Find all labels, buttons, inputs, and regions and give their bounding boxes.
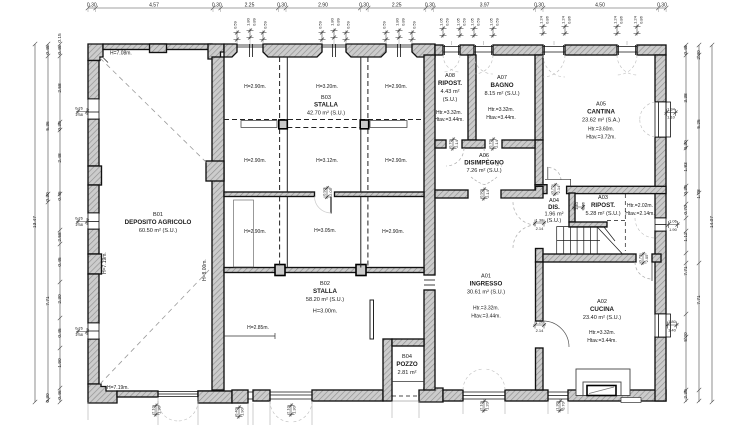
svg-text:Htav.=3.44m.: Htav.=3.44m.	[434, 117, 464, 123]
svg-text:1.20: 1.20	[485, 401, 490, 410]
svg-text:RIPOST.: RIPOST.	[438, 80, 462, 87]
svg-text:B01: B01	[153, 212, 163, 218]
svg-text:DISIMPEGNO: DISIMPEGNO	[464, 160, 504, 167]
svg-text:1.40: 1.40	[668, 328, 677, 333]
svg-text:2.30: 2.30	[696, 50, 702, 60]
svg-text:A06: A06	[479, 153, 489, 159]
svg-text:H=2.85m.: H=2.85m.	[247, 325, 269, 331]
svg-text:1.24: 1.24	[539, 15, 544, 24]
svg-text:0.89: 0.89	[336, 17, 341, 26]
svg-text:0.30: 0.30	[87, 3, 97, 9]
svg-text:0.30: 0.30	[57, 121, 63, 131]
svg-text:3.97: 3.97	[480, 3, 490, 9]
svg-text:2.14: 2.14	[454, 139, 459, 148]
svg-text:H=8.00m.: H=8.00m.	[202, 259, 208, 281]
svg-text:1.24: 1.24	[633, 15, 638, 24]
svg-text:0.59: 0.59	[263, 20, 268, 29]
svg-text:Htav.=3.44m.: Htav.=3.44m.	[471, 314, 501, 320]
svg-text:0.59: 0.59	[476, 17, 481, 26]
svg-text:1.80: 1.80	[246, 17, 251, 26]
svg-text:1.90: 1.90	[57, 358, 63, 368]
svg-text:0.30: 0.30	[359, 3, 369, 9]
svg-text:1.30: 1.30	[157, 405, 162, 414]
svg-text:0.70: 0.70	[488, 139, 493, 148]
svg-text:H=2.90m.: H=2.90m.	[244, 229, 266, 235]
svg-text:Htr.=3.60m.: Htr.=3.60m.	[588, 127, 614, 133]
svg-text:H=3.12m.: H=3.12m.	[316, 158, 338, 164]
svg-text:2.90: 2.90	[318, 3, 328, 9]
svg-text:0.59: 0.59	[445, 17, 450, 26]
svg-text:1.80: 1.80	[668, 319, 677, 324]
svg-text:2.14: 2.14	[536, 226, 545, 231]
svg-text:0.59: 0.59	[382, 20, 387, 29]
svg-text:2.30: 2.30	[57, 294, 63, 304]
svg-text:0.76: 0.76	[75, 326, 84, 331]
svg-text:1.05: 1.05	[439, 17, 444, 26]
svg-text:14.07: 14.07	[709, 216, 715, 228]
svg-text:0.70: 0.70	[561, 401, 566, 410]
svg-text:POZZO: POZZO	[396, 361, 417, 368]
svg-text:H=2.90m.: H=2.90m.	[244, 84, 266, 90]
svg-text:0.45: 0.45	[57, 191, 63, 201]
svg-text:1.30: 1.30	[292, 405, 297, 414]
svg-text:0.30: 0.30	[277, 3, 287, 9]
svg-text:0.70: 0.70	[448, 139, 453, 148]
svg-text:1.90: 1.90	[240, 407, 245, 416]
svg-text:1.38: 1.38	[75, 332, 84, 337]
svg-text:1.78: 1.78	[696, 189, 702, 199]
svg-text:5.28 m² (S.U.): 5.28 m² (S.U.)	[585, 211, 620, 217]
svg-text:1.05: 1.05	[470, 17, 475, 26]
svg-text:1.05: 1.05	[489, 17, 494, 26]
svg-text:0.86: 0.86	[619, 15, 624, 24]
svg-text:1.24: 1.24	[561, 15, 566, 24]
svg-text:2.14: 2.14	[536, 328, 545, 333]
svg-text:0.59: 0.59	[233, 20, 238, 29]
svg-text:0.76: 0.76	[75, 106, 84, 111]
svg-text:0.15: 0.15	[57, 33, 63, 43]
svg-text:1.38: 1.38	[75, 112, 84, 117]
svg-text:7.71: 7.71	[696, 295, 702, 305]
svg-text:2.10: 2.10	[151, 405, 156, 414]
svg-text:0.70: 0.70	[683, 205, 689, 215]
svg-text:1.10: 1.10	[667, 115, 676, 120]
svg-text:0.45: 0.45	[683, 45, 689, 55]
svg-text:30.61 m² (S.U.): 30.61 m² (S.U.)	[467, 290, 505, 296]
svg-text:1.05: 1.05	[456, 17, 461, 26]
svg-text:DEPOSITO AGRICOLO: DEPOSITO AGRICOLO	[125, 219, 192, 226]
svg-text:0.30: 0.30	[45, 393, 51, 403]
svg-text:2.81 m²: 2.81 m²	[398, 370, 417, 376]
svg-text:A02: A02	[597, 299, 607, 305]
svg-text:0.86: 0.86	[545, 15, 550, 24]
svg-text:2.25: 2.25	[245, 3, 255, 9]
svg-text:(S.U.): (S.U.)	[547, 218, 562, 224]
svg-text:7.71: 7.71	[45, 296, 51, 306]
svg-text:1.30: 1.30	[555, 401, 560, 410]
svg-text:23.40 m² (S.U.): 23.40 m² (S.U.)	[583, 315, 621, 321]
svg-text:0.45: 0.45	[57, 45, 63, 55]
svg-text:0.45: 0.45	[57, 328, 63, 338]
svg-text:1.34: 1.34	[667, 107, 676, 112]
svg-text:H=3.00m.: H=3.00m.	[313, 309, 338, 315]
svg-text:58.20 m² (S.U.): 58.20 m² (S.U.)	[306, 297, 344, 303]
svg-text:2.14: 2.14	[485, 189, 490, 198]
svg-text:1.20: 1.20	[536, 320, 545, 325]
svg-text:CANTINA: CANTINA	[587, 109, 615, 116]
svg-text:A03: A03	[598, 195, 608, 201]
svg-text:H=7.19m.: H=7.19m.	[107, 385, 129, 391]
svg-text:Htr.=2.02m.: Htr.=2.02m.	[627, 203, 653, 209]
svg-text:0.30: 0.30	[425, 3, 435, 9]
svg-text:0.86: 0.86	[567, 15, 572, 24]
svg-text:B03: B03	[321, 95, 331, 101]
svg-text:Htav.=2.14m.: Htav.=2.14m.	[625, 211, 655, 217]
svg-text:0.30: 0.30	[212, 3, 222, 9]
svg-text:5.36: 5.36	[45, 121, 51, 131]
svg-text:0.70: 0.70	[550, 185, 555, 194]
svg-text:0.30: 0.30	[657, 3, 667, 9]
svg-text:0.89: 0.89	[401, 17, 406, 26]
svg-text:1.12: 1.12	[683, 232, 689, 242]
svg-text:0.89: 0.89	[252, 17, 257, 26]
svg-text:5.25: 5.25	[696, 119, 702, 129]
svg-text:STALLA: STALLA	[314, 102, 338, 109]
svg-text:60.50 m² (S.U.): 60.50 m² (S.U.)	[139, 228, 177, 234]
svg-text:4.57: 4.57	[149, 3, 159, 9]
svg-text:2.30: 2.30	[683, 389, 689, 399]
svg-text:Htr.=3.32m.: Htr.=3.32m.	[436, 110, 462, 116]
svg-text:H=2.90m.: H=2.90m.	[385, 158, 407, 164]
svg-text:A05: A05	[596, 102, 606, 108]
svg-text:1.06: 1.06	[669, 219, 678, 224]
svg-text:4.50: 4.50	[595, 3, 605, 9]
svg-text:0.59: 0.59	[412, 20, 417, 29]
svg-text:A08: A08	[445, 73, 455, 79]
svg-text:2.05: 2.05	[644, 254, 649, 263]
svg-text:H=7.08m.: H=7.08m.	[110, 51, 132, 57]
svg-text:2.14: 2.14	[494, 139, 499, 148]
svg-text:2.25: 2.25	[392, 3, 402, 9]
svg-text:INGRESSO: INGRESSO	[470, 281, 503, 288]
svg-text:0.45: 0.45	[57, 257, 63, 267]
svg-text:7.71: 7.71	[683, 266, 689, 276]
svg-text:Htr.=3.32m.: Htr.=3.32m.	[473, 306, 499, 312]
svg-text:0.30: 0.30	[683, 140, 689, 150]
svg-text:DIS.: DIS.	[548, 205, 560, 211]
svg-text:0.30: 0.30	[45, 192, 51, 202]
svg-text:0.46: 0.46	[57, 390, 63, 400]
svg-text:STALLA: STALLA	[313, 288, 337, 295]
svg-text:2.10: 2.10	[479, 401, 484, 410]
svg-text:0.45: 0.45	[45, 45, 51, 55]
svg-text:H=2.90m.: H=2.90m.	[382, 229, 404, 235]
svg-text:B04: B04	[402, 354, 412, 360]
svg-text:1.83: 1.83	[683, 162, 689, 172]
svg-text:Htav.=3.72m.: Htav.=3.72m.	[586, 135, 616, 141]
svg-text:4.43 m²: 4.43 m²	[441, 89, 460, 95]
svg-text:H=3.05m.: H=3.05m.	[314, 228, 336, 234]
svg-text:Htr.=3.32m.: Htr.=3.32m.	[589, 330, 615, 336]
svg-text:2.48: 2.48	[57, 153, 63, 163]
svg-text:0.90: 0.90	[479, 189, 484, 198]
svg-text:0.90: 0.90	[322, 187, 327, 196]
svg-text:Htr.=3.32m.: Htr.=3.32m.	[488, 107, 514, 113]
svg-text:13.47: 13.47	[32, 216, 38, 228]
svg-text:1.24: 1.24	[613, 15, 618, 24]
svg-text:7.26 m² (S.U.): 7.26 m² (S.U.)	[466, 168, 501, 174]
svg-text:H=7.19m.: H=7.19m.	[102, 252, 108, 274]
svg-text:1.38: 1.38	[536, 218, 545, 223]
svg-text:1.38: 1.38	[75, 222, 84, 227]
svg-text:0.46: 0.46	[581, 201, 586, 210]
svg-text:RIPOST.: RIPOST.	[591, 202, 615, 209]
svg-text:8.15 m² (S.U.): 8.15 m² (S.U.)	[484, 91, 519, 97]
svg-text:2.05: 2.05	[328, 187, 333, 196]
svg-text:0.59: 0.59	[462, 17, 467, 26]
svg-text:2.10: 2.10	[286, 405, 291, 414]
svg-text:1.96 m²: 1.96 m²	[545, 212, 564, 218]
svg-text:A04: A04	[549, 198, 559, 204]
svg-text:2.14: 2.14	[556, 185, 561, 194]
svg-text:0.30: 0.30	[534, 3, 544, 9]
svg-text:23.62 m² (S.A.): 23.62 m² (S.A.)	[582, 118, 620, 124]
svg-text:2.58: 2.58	[57, 232, 63, 242]
svg-text:0.30: 0.30	[683, 185, 689, 195]
svg-text:H=2.90m.: H=2.90m.	[385, 84, 407, 90]
svg-text:Htav.=3.44m.: Htav.=3.44m.	[486, 115, 516, 121]
svg-text:3.38: 3.38	[683, 93, 689, 103]
svg-text:42.70 m² (S.U.): 42.70 m² (S.U.)	[307, 111, 345, 117]
svg-text:0.59: 0.59	[495, 17, 500, 26]
svg-text:Htav.=3.44m.: Htav.=3.44m.	[587, 338, 617, 344]
svg-text:1.40: 1.40	[574, 201, 579, 210]
svg-text:0.86: 0.86	[639, 15, 644, 24]
svg-text:2.58: 2.58	[57, 83, 63, 93]
svg-text:0.76: 0.76	[75, 216, 84, 221]
svg-text:5.20: 5.20	[683, 332, 689, 342]
svg-text:0.59: 0.59	[346, 20, 351, 29]
svg-text:CUCINA: CUCINA	[590, 306, 615, 313]
svg-text:0.78: 0.78	[638, 254, 643, 263]
svg-text:1.90: 1.90	[669, 227, 678, 232]
svg-text:0.40: 0.40	[234, 407, 239, 416]
svg-text:1.80: 1.80	[395, 17, 400, 26]
svg-text:H=3.20m.: H=3.20m.	[316, 84, 338, 90]
svg-text:A01: A01	[481, 274, 491, 280]
svg-text:0.59: 0.59	[318, 20, 323, 29]
svg-text:H=2.90m.: H=2.90m.	[244, 158, 266, 164]
svg-text:(S.U.): (S.U.)	[443, 97, 458, 103]
svg-text:B02: B02	[320, 281, 330, 287]
svg-text:BAGNO: BAGNO	[490, 82, 513, 89]
svg-text:1.80: 1.80	[330, 17, 335, 26]
svg-text:A07: A07	[497, 75, 507, 81]
